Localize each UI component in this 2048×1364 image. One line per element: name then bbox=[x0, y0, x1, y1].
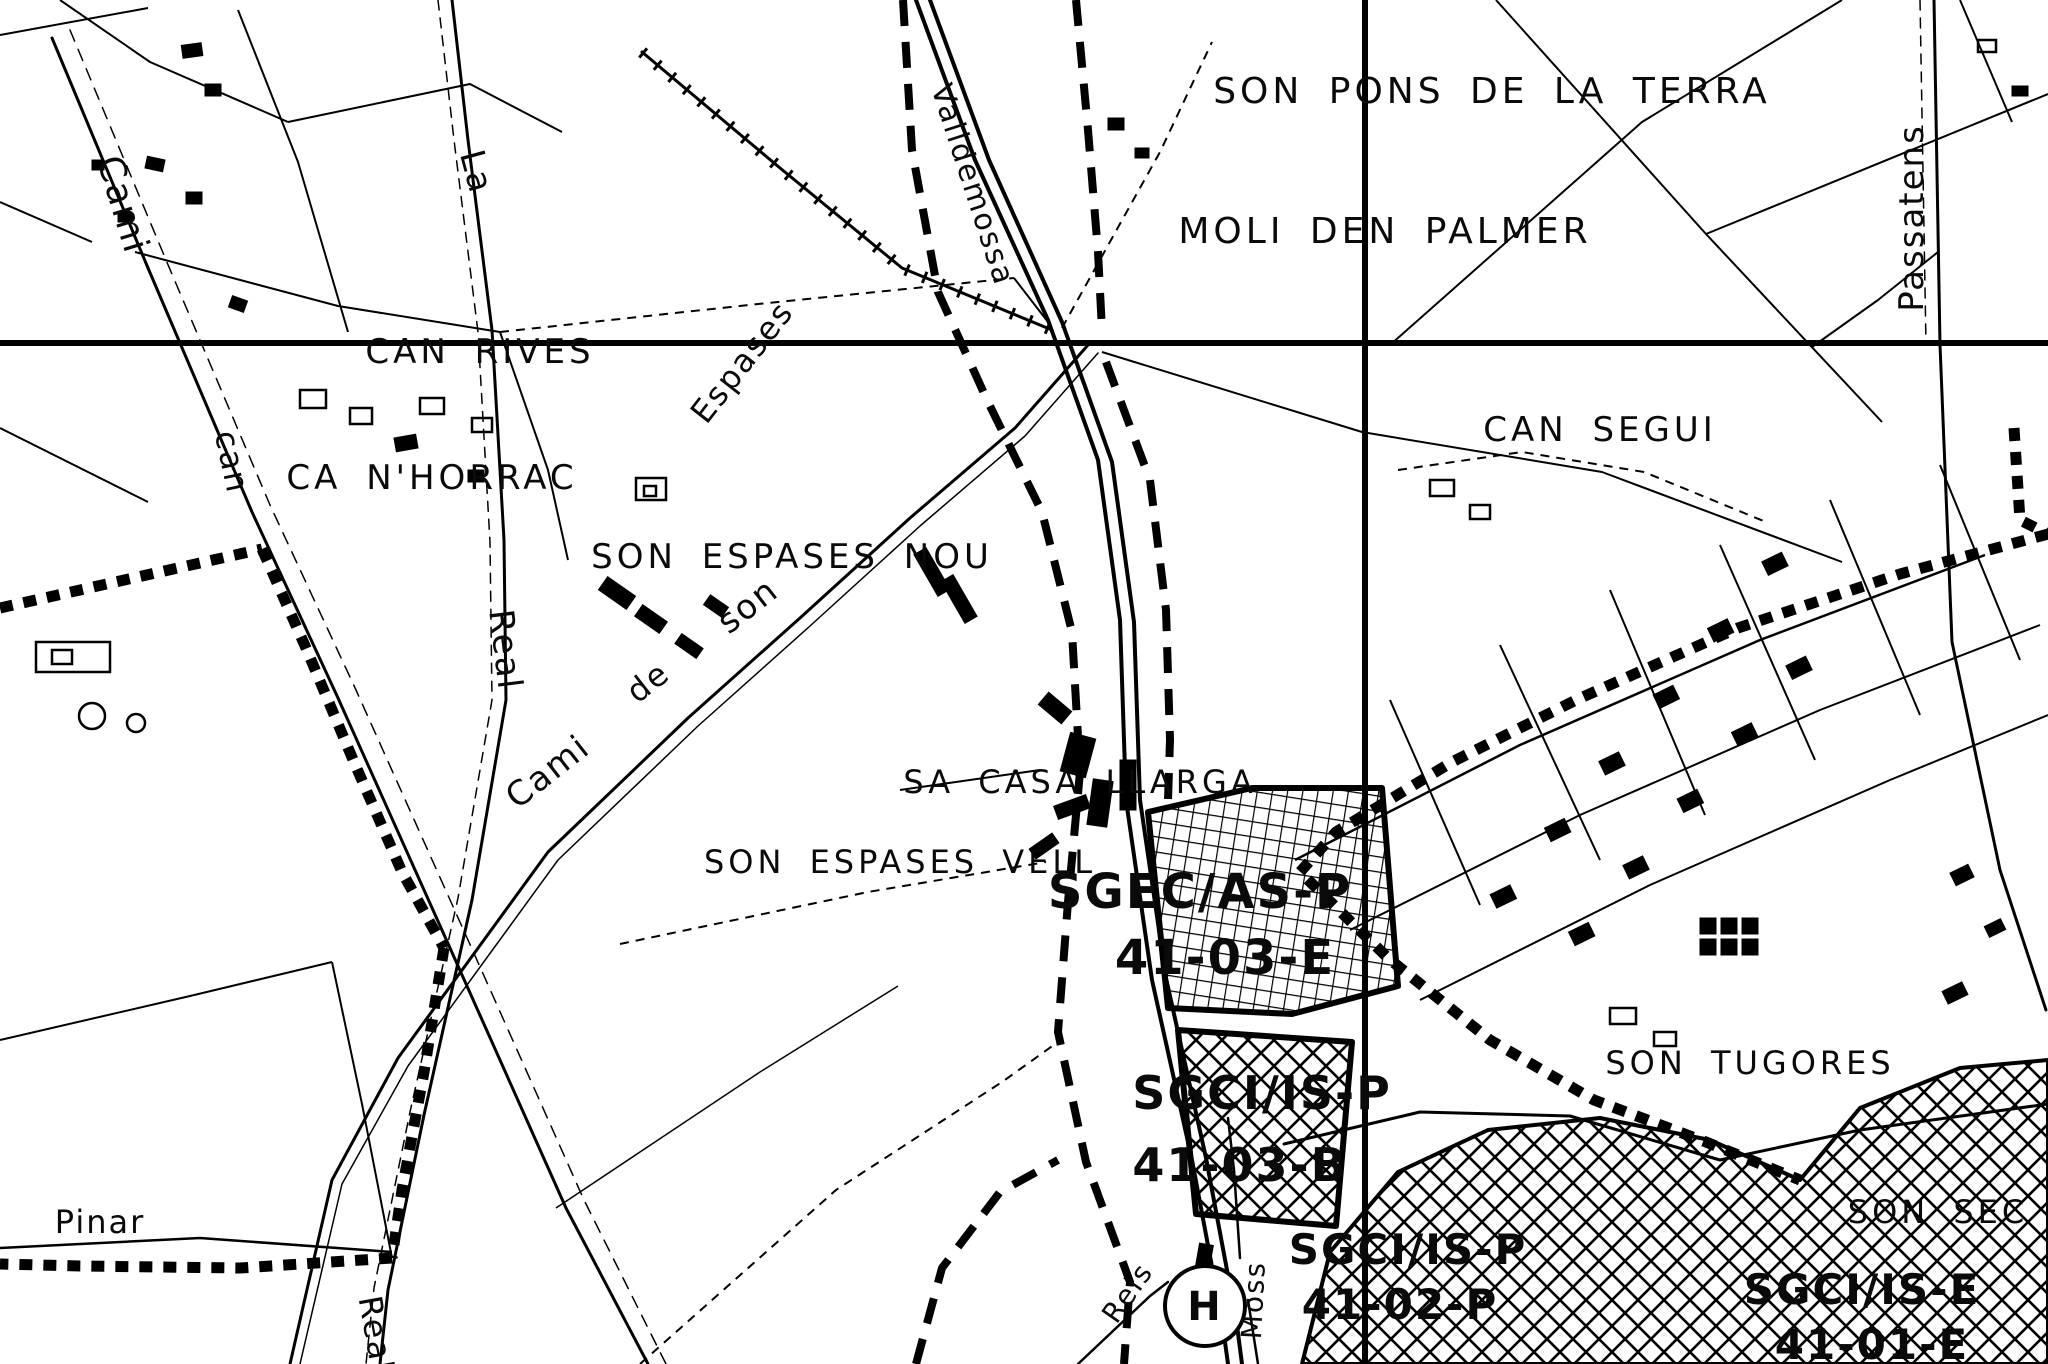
map-label-son-tugores: SON TUGORES bbox=[1605, 1047, 1894, 1079]
map-label-zone-41-02-p: 41-02-P bbox=[1302, 1284, 1499, 1326]
map-label-zone-sgec-as-p: SGEC/AS-P bbox=[1048, 868, 1352, 916]
map-label-can-segui: CAN SEGUI bbox=[1483, 413, 1717, 447]
map-label-son-espases-nou: SON ESPASES NOU bbox=[591, 540, 993, 574]
map-label-son-pons-de-la-terra: SON PONS DE LA TERRA bbox=[1213, 74, 1771, 110]
boundary-dashed bbox=[903, 0, 1170, 1364]
map-canvas: SON PONS DE LA TERRAMOLI DEN PALMERCamiL… bbox=[0, 0, 2048, 1364]
map-label-zone-sgci-is-p: SGCI/IS-P bbox=[1132, 1070, 1392, 1116]
map-label-son-sec: SON SEC bbox=[1848, 1196, 2028, 1228]
map-label-son-espases-vell: SON ESPASES VELL bbox=[704, 846, 1096, 878]
map-graphics bbox=[0, 0, 2048, 1364]
road-passatens bbox=[1934, 0, 2046, 1010]
map-label-moss: Moss bbox=[1238, 1260, 1270, 1340]
map-label-zone-41-01-e: 41-01-E bbox=[1775, 1324, 1969, 1364]
well-circle-1 bbox=[79, 703, 105, 729]
road-la-real bbox=[380, 0, 506, 1364]
buildings bbox=[36, 40, 2028, 1285]
map-label-sa-casa-llarga: SA CASA LLARGA bbox=[903, 766, 1256, 798]
zone-polygon-4103b bbox=[1178, 1030, 1352, 1226]
map-label-hospital-h: H bbox=[1187, 1287, 1222, 1327]
map-label-pinar: Pinar bbox=[55, 1206, 146, 1238]
map-label-zone-sgci-is-p-2: SGCI/IS-P bbox=[1289, 1229, 1528, 1271]
map-label-moli-den-palmer: MOLI DEN PALMER bbox=[1178, 214, 1591, 250]
map-label-zone-41-03-e: 41-03-E bbox=[1115, 934, 1335, 982]
map-label-can-rives: CAN RIVES bbox=[365, 335, 594, 369]
map-label-ca-nhorrac: CA N'HORRAC bbox=[286, 461, 577, 495]
map-label-real: Real bbox=[483, 608, 527, 693]
map-label-passatens: Passatens bbox=[1895, 124, 1929, 312]
map-label-la: La bbox=[454, 146, 498, 197]
well-circle-2 bbox=[127, 714, 145, 732]
map-label-zone-sgci-is-e: SGCI/IS-E bbox=[1744, 1269, 1981, 1311]
map-label-zone-41-03-b: 41-03-B bbox=[1132, 1142, 1347, 1188]
